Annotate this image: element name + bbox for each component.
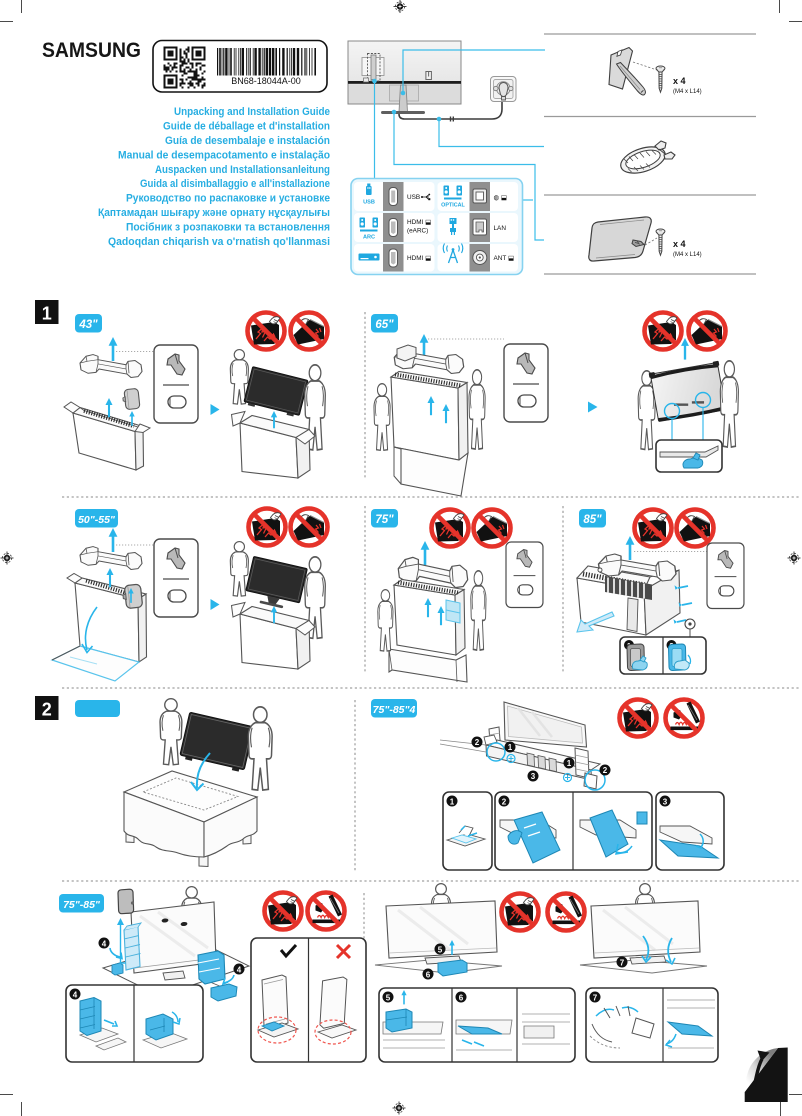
svg-text:1: 1 xyxy=(508,743,513,752)
svg-text:Auspacken und Installationsanl: Auspacken und Installationsanleitung xyxy=(155,164,330,176)
svg-text:43": 43" xyxy=(78,319,98,331)
svg-text:Unpacking and Installation Gui: Unpacking and Installation Guide xyxy=(174,106,330,118)
svg-text:75": 75" xyxy=(375,514,394,526)
svg-text:3: 3 xyxy=(531,772,536,781)
svg-text:1: 1 xyxy=(42,304,52,324)
svg-text:SAMSUNG: SAMSUNG xyxy=(42,38,141,62)
svg-text:7: 7 xyxy=(620,958,625,967)
svg-text:75"-85"4: 75"-85"4 xyxy=(373,704,416,716)
svg-text:◍ ⬓: ◍ ⬓ xyxy=(494,195,507,202)
svg-text:1: 1 xyxy=(567,759,572,768)
svg-text:Guide de déballage et d'instal: Guide de déballage et d'installation xyxy=(163,120,330,132)
svg-text:Руководство по распаковке и ус: Руководство по распаковке и установке xyxy=(126,193,330,205)
svg-text:5: 5 xyxy=(386,993,391,1002)
svg-text:85": 85" xyxy=(583,514,602,526)
svg-text:ARC: ARC xyxy=(363,235,375,241)
svg-text:LAN: LAN xyxy=(494,225,507,232)
svg-text:Guida al disimballaggio e all': Guida al disimballaggio e all'installazi… xyxy=(140,178,330,190)
svg-text:2: 2 xyxy=(502,797,507,806)
svg-text:ANT ⬓: ANT ⬓ xyxy=(494,255,514,262)
svg-text:Guía de desembalaje e instalac: Guía de desembalaje e instalación xyxy=(165,135,330,147)
svg-text:OPTICAL: OPTICAL xyxy=(441,203,465,209)
svg-text:(M4 x L14): (M4 x L14) xyxy=(673,89,702,95)
svg-text:75"-85": 75"-85" xyxy=(63,899,101,911)
svg-text:Посібник з розпаковки та встан: Посібник з розпаковки та встановлення xyxy=(126,222,330,234)
svg-text:BN68-18044A-00: BN68-18044A-00 xyxy=(231,76,301,86)
svg-text:USB: USB xyxy=(407,194,420,201)
svg-text:4: 4 xyxy=(237,965,242,974)
svg-text:2: 2 xyxy=(603,766,608,775)
svg-text:6: 6 xyxy=(459,993,464,1002)
svg-text:4: 4 xyxy=(73,990,78,999)
svg-text:50"-55": 50"-55" xyxy=(78,514,116,526)
svg-text:Қаптамадан шығару және орнату: Қаптамадан шығару және орнату нұсқаулығы xyxy=(98,207,330,219)
svg-text:7: 7 xyxy=(593,993,598,1002)
svg-text:3: 3 xyxy=(663,797,668,806)
svg-text:HDMI ⬓: HDMI ⬓ xyxy=(407,255,431,262)
svg-text:1: 1 xyxy=(450,797,455,806)
svg-text:x 4: x 4 xyxy=(673,76,686,86)
svg-text:5: 5 xyxy=(438,945,443,954)
svg-text:2: 2 xyxy=(42,700,52,720)
svg-text:(eARC): (eARC) xyxy=(407,228,428,235)
svg-text:x 4: x 4 xyxy=(673,239,686,249)
svg-text:Manual de desempacotamento e i: Manual de desempacotamento e instalação xyxy=(118,149,330,161)
svg-text:Qadoqdan chiqarish va o'rnatis: Qadoqdan chiqarish va o'rnatish qo'llanm… xyxy=(108,236,330,248)
svg-text:65": 65" xyxy=(375,319,394,331)
svg-text:(M4 x L14): (M4 x L14) xyxy=(673,252,702,258)
svg-text:USB: USB xyxy=(363,200,375,206)
svg-text:6: 6 xyxy=(426,970,431,979)
svg-text:4: 4 xyxy=(102,939,107,948)
svg-text:2: 2 xyxy=(475,738,480,747)
svg-text:HDMI ⬓: HDMI ⬓ xyxy=(407,219,431,226)
